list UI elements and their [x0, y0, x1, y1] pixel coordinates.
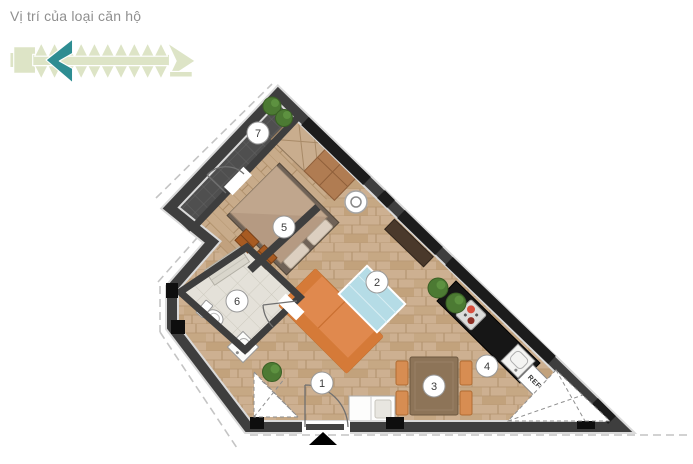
- plant-icon: [428, 278, 448, 298]
- room-marker-4: 4: [476, 355, 498, 377]
- svg-text:5: 5: [281, 222, 287, 234]
- room-marker-3: 3: [423, 375, 445, 397]
- page: Vị trí của loại căn hộ: [0, 0, 693, 464]
- svg-text:1: 1: [319, 378, 325, 390]
- ceiling-lamp-icon: [345, 191, 367, 213]
- room-marker-7: 7: [247, 122, 269, 144]
- dining-chair: [460, 391, 472, 415]
- svg-text:7: 7: [255, 128, 261, 140]
- plant-icon: [276, 110, 293, 127]
- dining-chair: [396, 361, 408, 385]
- apartment-floor-plan: REF: [0, 0, 693, 464]
- room-marker-1: 1: [311, 372, 333, 394]
- svg-text:4: 4: [484, 361, 490, 373]
- room-marker-6: 6: [226, 290, 248, 312]
- dining-chair: [460, 361, 472, 385]
- plant-icon: [263, 363, 282, 382]
- svg-text:6: 6: [234, 296, 240, 308]
- plant-icon: [446, 293, 466, 313]
- svg-text:2: 2: [374, 277, 380, 289]
- room-marker-2: 2: [366, 271, 388, 293]
- dining-chair: [396, 391, 408, 415]
- room-marker-5: 5: [273, 216, 295, 238]
- svg-text:3: 3: [431, 381, 437, 393]
